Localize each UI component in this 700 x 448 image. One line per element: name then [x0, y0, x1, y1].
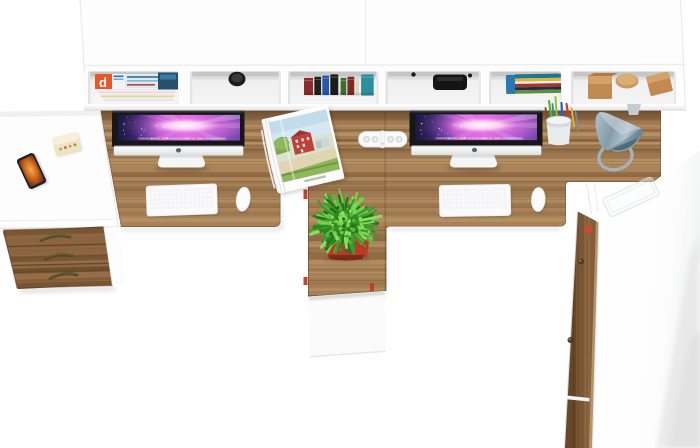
- svg-text:d: d: [99, 75, 107, 90]
